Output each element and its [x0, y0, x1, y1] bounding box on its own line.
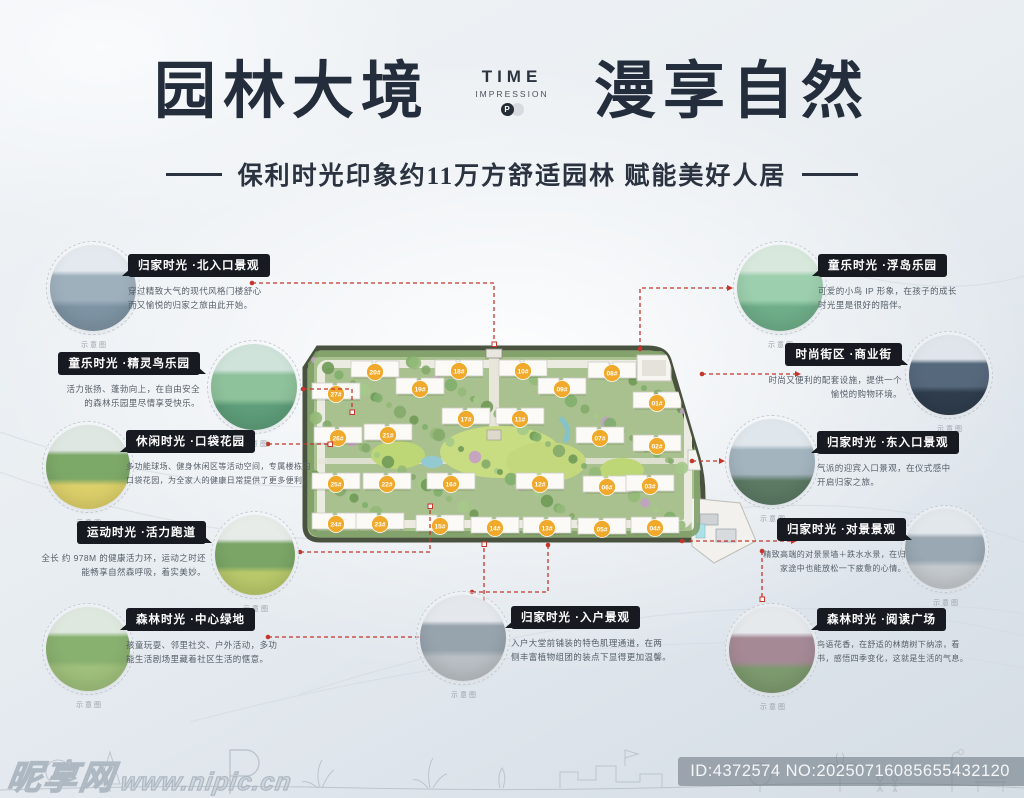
building-badge: 07# — [592, 430, 609, 447]
callout-photo-north-entrance — [46, 241, 140, 335]
building-badge: 04# — [647, 520, 664, 537]
svg-text:17#: 17# — [460, 416, 471, 423]
photo-framed-view — [905, 509, 985, 589]
photo-commercial-street — [909, 335, 989, 415]
svg-text:03#: 03# — [644, 483, 655, 490]
callout-photo-commercial-street — [905, 331, 993, 419]
callout-east-entrance: 归家时光 ·东入口景观 气派的迎宾入口景观，在仪式感中 开启归家之旅。 — [817, 431, 992, 490]
svg-text:16#: 16# — [445, 481, 456, 488]
callout-desc: 孩童玩耍、邻里社交、户外活动，多功 能生活剧场里藏着社区生活的惬意。 — [126, 638, 311, 667]
building-badge: 21# — [380, 427, 397, 444]
callout-label: 童乐时光 ·浮岛乐园 — [818, 254, 947, 277]
callout-spirit-bird-park: 童乐时光 ·精灵鸟乐园 活力张扬、蓬勃向上，在自由安全 的森林乐园里尽情享受快乐… — [28, 352, 200, 411]
svg-text:15#: 15# — [434, 523, 445, 530]
building-badge: 12# — [532, 476, 549, 493]
building-badge: 18# — [451, 363, 468, 380]
building-badge: 13# — [539, 520, 556, 537]
callout-desc: 入户大堂前铺装的特色肌理通道，在两 侧丰富植物组团的装点下显得更加温馨。 — [511, 636, 691, 665]
callout-entry-landscape: 归家时光 ·入户景观 入户大堂前铺装的特色肌理通道，在两 侧丰富植物组团的装点下… — [511, 606, 691, 665]
callout-framed-view: 归家时光 ·对景景观 精致高端的对景景墙＋跌水水景，在归 家途中也能放松一下疲惫… — [748, 518, 906, 575]
photo-caption: 示意图 — [451, 690, 478, 700]
callout-floating-island-park: 童乐时光 ·浮岛乐园 可爱的小鸟 IP 形象，在孩子的成长 时光里是很好的陪伴。 — [818, 254, 993, 313]
svg-text:26#: 26# — [332, 435, 343, 442]
svg-text:02#: 02# — [651, 443, 662, 450]
photo-caption: 示意图 — [760, 702, 787, 712]
callout-photo-framed-view — [901, 505, 989, 593]
callout-desc: 时尚又便利的配套设施，提供一个 愉悦的购物环境。 — [768, 373, 902, 402]
building-badge: 24# — [328, 516, 345, 533]
callout-commercial-street: 时尚街区 ·商业街 时尚又便利的配套设施，提供一个 愉悦的购物环境。 — [752, 343, 902, 402]
building-badge: 05# — [594, 521, 611, 538]
watermark-site-url: www.nipic.cn — [119, 768, 294, 798]
callout-desc: 气派的迎宾入口景观，在仪式感中 开启归家之旅。 — [817, 461, 992, 490]
callout-desc: 多功能球场、健身休闲区等活动空间，专属楼栋的 口袋花园，为全家人的健康日常提供了… — [126, 460, 321, 487]
callout-label: 森林时光 ·中心绿地 — [126, 608, 255, 631]
photo-spirit-bird-park — [211, 344, 297, 430]
building-badge: 22# — [379, 476, 396, 493]
building-badge: 20# — [367, 364, 384, 381]
building-badge: 16# — [443, 476, 460, 493]
building-badge: 27# — [328, 386, 345, 403]
callout-desc: 鸟语花香，在舒适的林荫树下纳凉，看 书，感悟四季变化，这就是生活的气息。 — [817, 638, 997, 665]
svg-text:13#: 13# — [541, 525, 552, 532]
callout-label: 归家时光 ·东入口景观 — [817, 431, 959, 454]
photo-entry-landscape — [420, 595, 506, 681]
building-badge: 15# — [432, 518, 449, 535]
callout-north-entrance: 归家时光 ·北入口景观 穿过精致大气的现代风格门楼舒心 而又愉悦的归家之旅由此开… — [128, 254, 313, 313]
photo-central-green — [46, 607, 130, 691]
svg-text:07#: 07# — [594, 435, 605, 442]
callout-photo-pocket-garden — [42, 421, 134, 513]
building-badge: 17# — [458, 411, 475, 428]
building-badge: 03# — [642, 478, 659, 495]
photo-vitality-track — [215, 515, 295, 595]
building-badge: 14# — [487, 520, 504, 537]
callout-photo-vitality-track — [211, 511, 299, 599]
svg-text:05#: 05# — [596, 526, 607, 533]
callout-photo-entry-landscape — [416, 591, 510, 685]
photo-pocket-garden — [46, 425, 130, 509]
svg-text:01#: 01# — [651, 400, 662, 407]
svg-text:14#: 14# — [489, 525, 500, 532]
photo-east-entrance — [729, 419, 815, 505]
building-badge: 08# — [604, 365, 621, 382]
svg-text:22#: 22# — [381, 481, 392, 488]
callout-label: 休闲时光 ·口袋花园 — [126, 430, 255, 453]
building-badge: 23# — [372, 516, 389, 533]
svg-text:10#: 10# — [517, 368, 528, 375]
photo-caption: 示意图 — [933, 598, 960, 608]
callout-pocket-garden: 休闲时光 ·口袋花园 多功能球场、健身休闲区等活动空间，专属楼栋的 口袋花园，为… — [126, 430, 321, 487]
callout-desc: 可爱的小鸟 IP 形象，在孩子的成长 时光里是很好的陪伴。 — [818, 284, 993, 313]
svg-text:25#: 25# — [330, 481, 341, 488]
callout-label: 森林时光 ·阅读广场 — [817, 608, 946, 631]
callout-label: 归家时光 ·入户景观 — [511, 606, 640, 629]
callout-photo-central-green — [42, 603, 134, 695]
image-id-band: ID:4372574 NO:20250716085655432120 — [678, 757, 1024, 786]
callout-desc: 穿过精致大气的现代风格门楼舒心 而又愉悦的归家之旅由此开始。 — [128, 284, 313, 313]
callout-label: 运动时光 ·活力跑道 — [77, 521, 206, 544]
building-badge: 10# — [515, 363, 532, 380]
svg-text:09#: 09# — [556, 386, 567, 393]
photo-floating-island-park — [737, 245, 823, 331]
svg-text:19#: 19# — [414, 386, 425, 393]
building-badge: 19# — [412, 381, 429, 398]
svg-text:21#: 21# — [382, 432, 393, 439]
svg-text:12#: 12# — [534, 481, 545, 488]
svg-text:11#: 11# — [515, 416, 526, 423]
callout-desc: 活力张扬、蓬勃向上，在自由安全 的森林乐园里尽情享受快乐。 — [66, 382, 200, 411]
poster: 园林大境 TIME IMPRESSION P 漫享自然 保利时光印象约11万方舒… — [0, 0, 1024, 798]
building-badge: 09# — [554, 381, 571, 398]
callout-photo-floating-island-park — [733, 241, 827, 335]
photo-north-entrance — [50, 245, 136, 331]
nipic-watermark: 昵享网 www.nipic.cn — [5, 750, 297, 798]
svg-text:24#: 24# — [330, 521, 341, 528]
callout-label: 归家时光 ·对景景观 — [777, 518, 906, 541]
callout-desc: 全长 约 978M 的健康活力环，运动之时还 能畅享自然森呼吸，着实美妙。 — [41, 551, 206, 580]
building-badge: 25# — [328, 476, 345, 493]
svg-text:20#: 20# — [369, 369, 380, 376]
callout-label: 童乐时光 ·精灵鸟乐园 — [58, 352, 200, 375]
svg-text:04#: 04# — [649, 525, 660, 532]
svg-text:27#: 27# — [330, 391, 341, 398]
callout-photo-east-entrance — [725, 415, 819, 509]
photo-reading-plaza — [729, 607, 815, 693]
callout-desc: 精致高端的对景景墙＋跌水水景，在归 家途中也能放松一下疲惫的心情。 — [763, 548, 906, 575]
svg-text:18#: 18# — [453, 368, 464, 375]
building-badge: 11# — [512, 411, 529, 428]
svg-text:06#: 06# — [601, 484, 612, 491]
callout-photo-reading-plaza — [725, 603, 819, 697]
callout-vitality-track: 运动时光 ·活力跑道 全长 约 978M 的健康活力环，运动之时还 能畅享自然森… — [36, 521, 206, 580]
building-badge: 06# — [599, 479, 616, 496]
building-badge: 01# — [649, 395, 666, 412]
svg-text:08#: 08# — [606, 370, 617, 377]
callout-photo-spirit-bird-park — [207, 340, 301, 434]
poly-seal-icon: P — [501, 103, 514, 116]
building-badge: 02# — [649, 438, 666, 455]
callout-label: 归家时光 ·北入口景观 — [128, 254, 270, 277]
callout-label: 时尚街区 ·商业街 — [785, 343, 902, 366]
callout-reading-plaza: 森林时光 ·阅读广场 鸟语花香，在舒适的林荫树下纳凉，看 书，感悟四季变化，这就… — [817, 608, 997, 665]
photo-caption: 示意图 — [81, 340, 108, 350]
svg-text:23#: 23# — [374, 521, 385, 528]
watermark-site-name: 昵享网 — [5, 750, 120, 798]
callout-central-green: 森林时光 ·中心绿地 孩童玩耍、邻里社交、户外活动，多功 能生活剧场里藏着社区生… — [126, 608, 311, 667]
photo-caption: 示意图 — [76, 700, 103, 710]
